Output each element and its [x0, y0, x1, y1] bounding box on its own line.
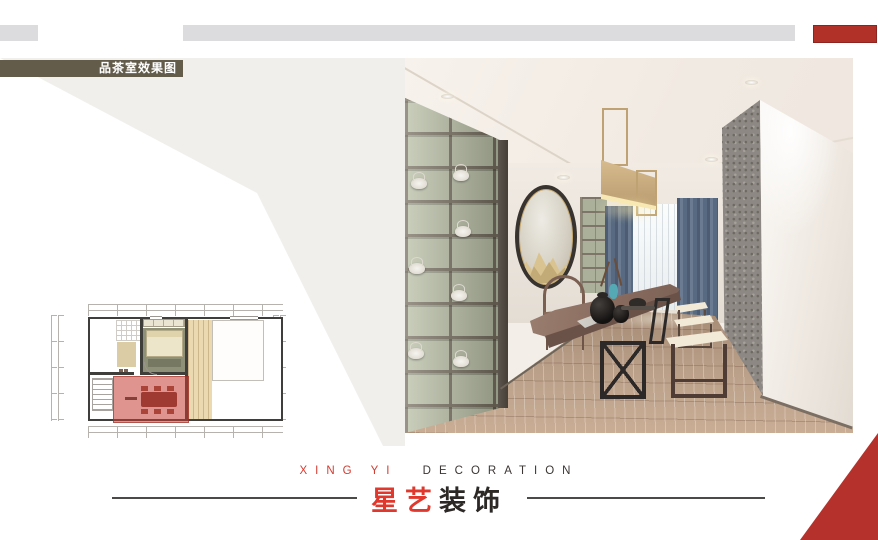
photo-clay-jar [590, 296, 615, 324]
photo-teapot [411, 178, 427, 189]
plan-chair-row [141, 386, 179, 391]
brand-english-primary: XING YI [300, 465, 398, 477]
photo-tea-tray [621, 306, 655, 310]
plan-room-label-mark [125, 397, 137, 400]
brand-chinese-primary: 星艺 [371, 486, 439, 516]
section-title: 品茶室效果图 [99, 61, 177, 75]
plan-wall [140, 372, 188, 375]
presentation-slide: 品茶室效果图 [0, 0, 878, 540]
plan-dimension-line [88, 432, 283, 438]
photo-shelf-side-panel [498, 140, 508, 408]
plan-dimension-line [51, 315, 57, 421]
plan-bed [146, 330, 183, 357]
photo-downlight [745, 80, 758, 85]
plan-dimension-line [58, 315, 64, 421]
photo-glass-vase [609, 284, 618, 299]
photo-right-wall [757, 98, 853, 433]
plan-closet [143, 319, 185, 327]
brand-chinese-line: 星艺装饰 [0, 479, 878, 518]
photo-teapot [408, 348, 424, 359]
plan-tea-table [141, 392, 177, 407]
brand-chinese-secondary: 装饰 [439, 486, 507, 516]
photo-teapot [451, 290, 467, 301]
plan-wall [88, 372, 134, 375]
decor-bar-accent [813, 25, 877, 43]
photo-pendant-frame [602, 108, 628, 166]
photo-downlight [557, 175, 570, 180]
photo-moon-mirror [515, 185, 577, 289]
plan-chair-row [141, 409, 179, 414]
plan-bathroom [117, 342, 136, 367]
photo-downlight [705, 157, 718, 162]
plan-terrace-outline [212, 320, 264, 381]
plan-wall [140, 317, 143, 374]
photo-stool-frame [671, 344, 727, 398]
plan-stairs [92, 378, 113, 411]
photo-teapot [453, 356, 469, 367]
decor-bar-center [183, 25, 795, 41]
photo-teapot [455, 226, 471, 237]
photo-pendant-halo [595, 196, 665, 222]
photo-curtain [677, 198, 718, 320]
plan-bathroom-tiles [116, 320, 143, 341]
brand-english-secondary: DECORATION [423, 465, 579, 477]
photo-teapot [453, 170, 469, 181]
section-title-tag: 品茶室效果图 [0, 60, 183, 77]
plan-deck-strip [188, 320, 212, 419]
plan-room-label-mark [119, 369, 129, 372]
brand-english-line: XING YI DECORATION [0, 465, 878, 477]
photo-teapot [409, 263, 425, 274]
tea-room-rendering-photo [405, 58, 853, 433]
photo-table-leg-frame [600, 341, 646, 399]
floor-plan [45, 296, 290, 440]
photo-downlight [441, 94, 454, 99]
decor-bar-left [0, 25, 38, 41]
